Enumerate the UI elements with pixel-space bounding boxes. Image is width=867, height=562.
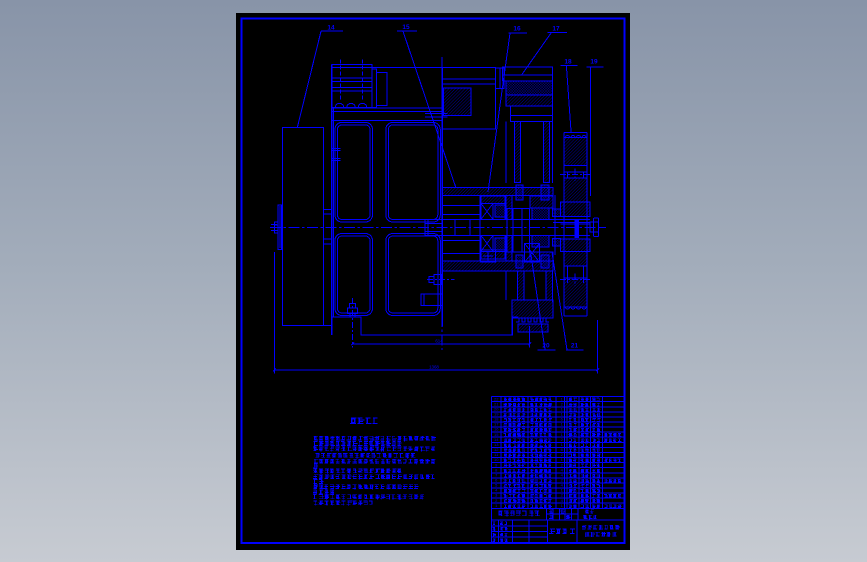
svg-text:19: 19 bbox=[590, 59, 598, 66]
svg-text:17: 17 bbox=[552, 26, 560, 33]
svg-text:21: 21 bbox=[571, 343, 579, 350]
svg-text:20: 20 bbox=[542, 343, 550, 350]
svg-text:14: 14 bbox=[327, 25, 335, 32]
svg-text:1368: 1368 bbox=[429, 364, 439, 369]
svg-text:16: 16 bbox=[513, 26, 521, 33]
svg-text:18: 18 bbox=[564, 59, 572, 66]
svg-text:15: 15 bbox=[402, 24, 410, 31]
svg-text:614: 614 bbox=[435, 338, 443, 343]
